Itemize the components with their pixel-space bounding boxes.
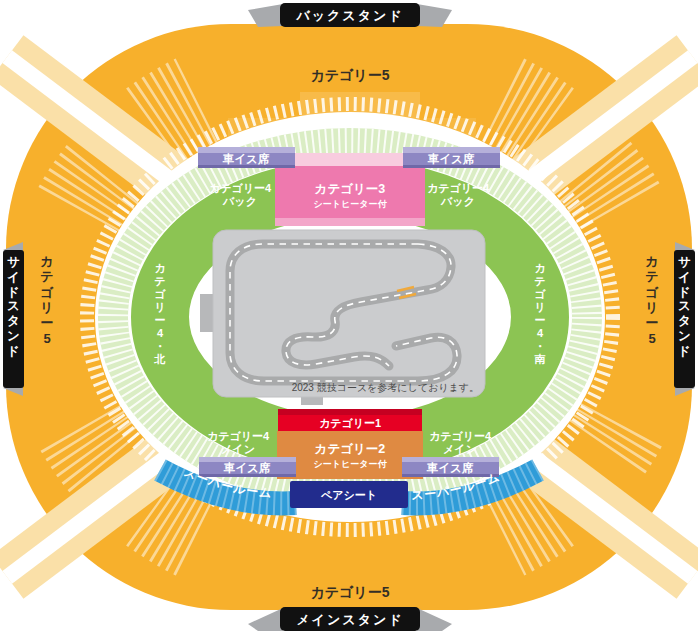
banner-ribbon bbox=[417, 608, 452, 631]
cat4-back-right-line2: バック bbox=[440, 195, 475, 207]
track-area: 2023 競技コースを参考にしております。 bbox=[200, 230, 485, 405]
back-stand-label: バックスタンド bbox=[295, 8, 403, 23]
cat4-north-label: カテゴリー4・北 bbox=[154, 262, 167, 365]
wheelchair-label-bottom-right: 車イス席 bbox=[426, 461, 474, 474]
banner-back-stand: バックスタンド bbox=[248, 3, 452, 27]
cat4-main-left-line1: カテゴリー4 bbox=[207, 430, 270, 442]
banner-main-stand: メインスタンド bbox=[248, 607, 452, 631]
cat4-main-right-line2: メイン bbox=[443, 443, 477, 455]
section-pair-seat[interactable]: ペアシート bbox=[290, 481, 408, 508]
side-stand-right-label: サイドスタンド bbox=[678, 255, 691, 358]
cat4-main-right-line1: カテゴリー4 bbox=[429, 430, 492, 442]
category1-top-edge bbox=[278, 409, 422, 415]
banner-ribbon bbox=[248, 4, 283, 27]
wheelchair-label-top-left: 車イス席 bbox=[222, 152, 270, 165]
banner-ribbon bbox=[417, 4, 452, 27]
cat4-south-label: カテゴリー4・南 bbox=[534, 262, 547, 365]
category1-label: カテゴリー1 bbox=[319, 417, 381, 429]
category2-label: カテゴリー2 bbox=[315, 442, 386, 456]
section-category2[interactable]: カテゴリー2 シートヒーター付 bbox=[277, 431, 423, 479]
wheelchair-bar-bottom-left[interactable]: 車イス席 bbox=[199, 457, 296, 477]
category3-upper-tier bbox=[293, 153, 407, 167]
cat4-back-left-line1: カテゴリー4 bbox=[209, 182, 272, 194]
pair-seat-label: ペアシート bbox=[320, 489, 377, 501]
category5-label-bottom: カテゴリー5 bbox=[310, 584, 389, 600]
banner-side-stand-left: サイドスタンド bbox=[3, 242, 24, 396]
wheelchair-bar-top-right[interactable]: 車イス席 bbox=[403, 147, 500, 168]
banner-ribbon bbox=[248, 608, 283, 631]
section-category3[interactable]: カテゴリー3 シートヒーター付 bbox=[275, 153, 425, 226]
wheelchair-label-top-right: 車イス席 bbox=[427, 152, 475, 165]
main-stand-label: メインスタンド bbox=[296, 612, 403, 627]
category5-label-top: カテゴリー5 bbox=[310, 67, 389, 83]
cat4-back-right-line1: カテゴリー4 bbox=[427, 182, 490, 194]
wheelchair-bar-top-left[interactable]: 車イス席 bbox=[198, 147, 295, 168]
category3-lower-tier bbox=[275, 218, 425, 226]
wheelchair-label-bottom-left: 車イス席 bbox=[223, 461, 271, 474]
wheelchair-bar-bottom-right[interactable]: 車イス席 bbox=[402, 457, 499, 477]
cat4-back-left-line2: バック bbox=[222, 195, 257, 207]
banner-side-stand-right: サイドスタンド bbox=[674, 242, 695, 396]
category3-sub-label: シートヒーター付 bbox=[314, 199, 388, 209]
section-category1[interactable]: カテゴリー1 bbox=[278, 409, 422, 431]
cat4-main-left-line2: メイン bbox=[221, 443, 255, 455]
category2-sub-label: シートヒーター付 bbox=[314, 459, 388, 469]
side-stand-left-label: サイドスタンド bbox=[7, 255, 20, 358]
track-note: 2023 競技コースを参考にしております。 bbox=[292, 382, 479, 393]
venue-seating-map: カテゴリー5 カテゴリー5 カテゴリー5 カテゴリー5 カテゴリー3 シートヒー… bbox=[0, 0, 698, 634]
category3-label: カテゴリー3 bbox=[315, 182, 386, 196]
